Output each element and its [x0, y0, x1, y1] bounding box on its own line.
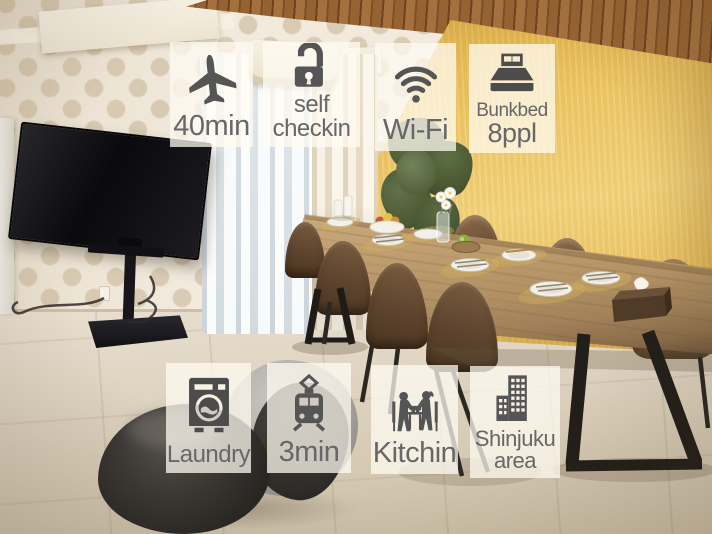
- candles: [332, 196, 354, 221]
- badge-label-line2: checkin: [273, 117, 351, 142]
- tissue: [634, 277, 649, 290]
- listing-photo: 40min self checkin Wi-Fi: [0, 0, 712, 534]
- double-bed-icon: [471, 49, 553, 101]
- flower-vase: [436, 188, 456, 243]
- badge-label: 3min: [279, 438, 340, 468]
- badge-self-checkin: self checkin: [263, 42, 360, 147]
- badge-label: 40min: [173, 112, 250, 142]
- badge-bunkbed: Bunkbed 8ppl: [469, 44, 555, 153]
- badge-wifi: Wi-Fi: [375, 43, 456, 151]
- badge-laundry: Laundry: [166, 363, 251, 473]
- tv-cables: [13, 276, 156, 322]
- fruit-bowl: [370, 213, 404, 233]
- dining-couple-icon: [373, 370, 456, 439]
- train-icon: [269, 368, 349, 438]
- badge-label-line2: area: [494, 450, 536, 473]
- open-padlock-icon: [265, 43, 358, 93]
- washing-machine-icon: [168, 368, 249, 443]
- badge-label-line1: self: [294, 93, 329, 118]
- wifi-icon: [377, 48, 454, 116]
- badge-label-line1: Shinjuku: [475, 428, 555, 451]
- badge-airport-access: 40min: [170, 42, 253, 147]
- badge-label: Wi-Fi: [383, 116, 448, 146]
- city-buildings-icon: [472, 371, 558, 428]
- badge-label: Kitchin: [373, 439, 457, 469]
- badge-label-line2: 8ppl: [487, 120, 536, 148]
- airplane-icon: [172, 47, 251, 112]
- badge-kitchen: Kitchin: [371, 365, 458, 474]
- badge-label: Laundry: [167, 443, 250, 468]
- badge-shinjuku-area: Shinjuku area: [470, 366, 560, 478]
- badge-station-access: 3min: [267, 363, 351, 473]
